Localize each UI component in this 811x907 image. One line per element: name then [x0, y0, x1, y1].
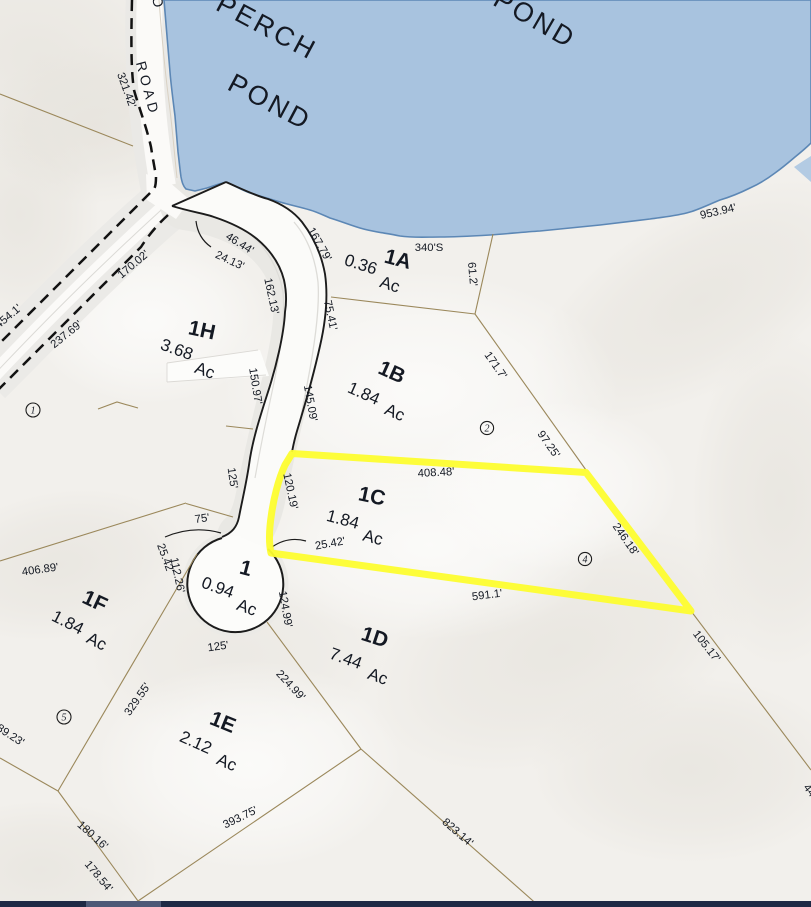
svg-text:340'S: 340'S [415, 242, 444, 254]
svg-text:2: 2 [485, 424, 490, 435]
svg-text:75': 75' [194, 512, 210, 526]
svg-text:1: 1 [31, 406, 36, 417]
svg-text:5: 5 [62, 713, 67, 724]
svg-text:4: 4 [583, 555, 588, 566]
svg-text:408.48': 408.48' [417, 466, 454, 480]
svg-text:61.2': 61.2' [465, 262, 479, 287]
